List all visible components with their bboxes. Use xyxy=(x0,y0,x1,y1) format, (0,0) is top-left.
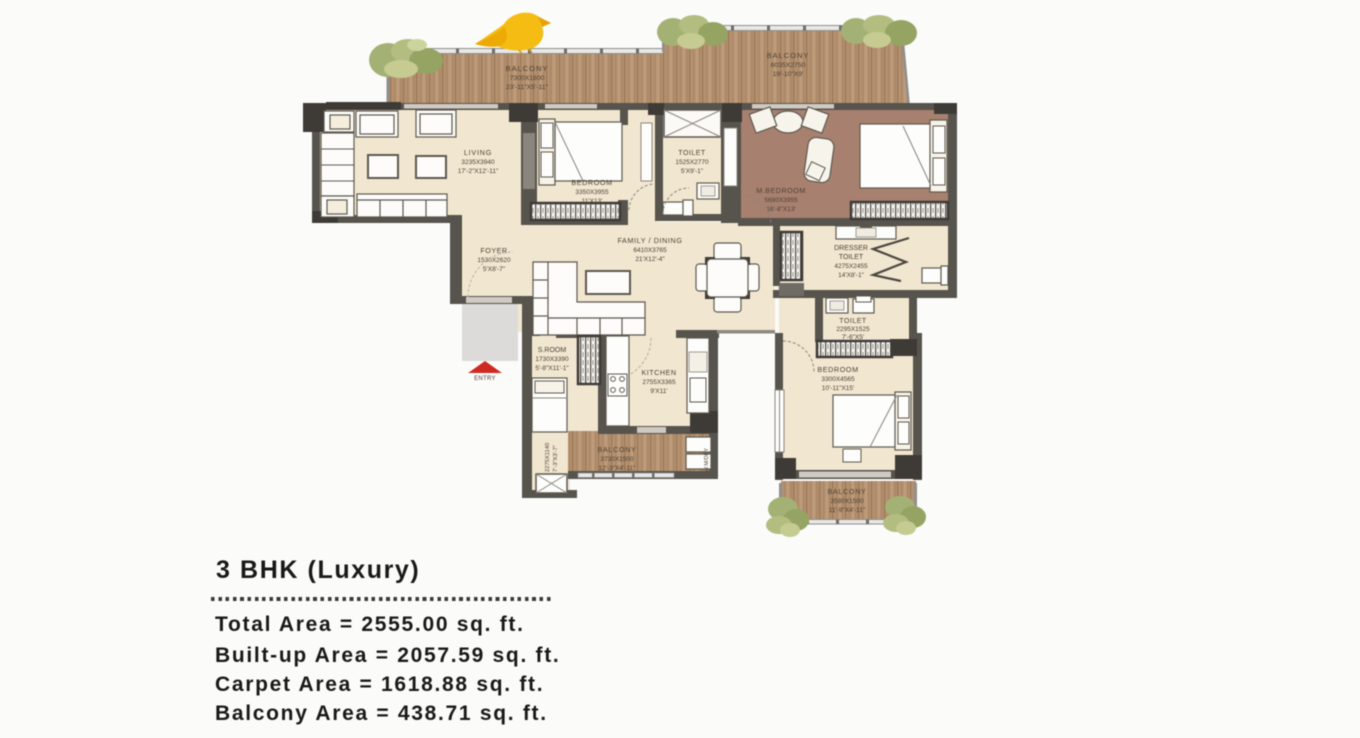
svg-text:BALCONY: BALCONY xyxy=(506,64,549,73)
svg-text:5'X9'-1": 5'X9'-1" xyxy=(681,168,704,175)
svg-text:3300X4565: 3300X4565 xyxy=(821,376,855,383)
svg-text:M.BEDROOM: M.BEDROOM xyxy=(756,186,806,195)
svg-text:21'X12'-4": 21'X12'-4" xyxy=(635,256,665,263)
svg-text:TOILET: TOILET xyxy=(678,150,706,157)
svg-text:FAMILY / DINING: FAMILY / DINING xyxy=(617,236,682,245)
svg-text:7300X1800: 7300X1800 xyxy=(510,75,545,82)
svg-text:DRESSER: DRESSER xyxy=(834,245,868,252)
svg-text:FOYER: FOYER xyxy=(480,246,507,255)
svg-text:10'-11"X15': 10'-11"X15' xyxy=(822,385,855,392)
svg-text:12'-3"X4'-11": 12'-3"X4'-11" xyxy=(599,465,637,472)
svg-text:11'X13': 11'X13' xyxy=(582,198,603,205)
svg-text:BEDROOM: BEDROOM xyxy=(817,365,858,374)
svg-text:3730X1500: 3730X1500 xyxy=(600,456,634,463)
svg-text:TOILET: TOILET xyxy=(839,254,864,261)
svg-text:BALCONY: BALCONY xyxy=(597,447,636,454)
svg-text:5680X3955: 5680X3955 xyxy=(764,197,798,204)
svg-text:9'X11': 9'X11' xyxy=(650,388,667,395)
svg-text:2755X3365: 2755X3365 xyxy=(642,379,676,386)
svg-text:7'-3"X3'-7": 7'-3"X3'-7" xyxy=(553,445,559,472)
svg-text:1530X2620: 1530X2620 xyxy=(477,257,511,264)
svg-text:23'-11"X5'-11": 23'-11"X5'-11" xyxy=(506,84,549,91)
svg-text:BALCONY: BALCONY xyxy=(767,51,810,60)
svg-text:1730X3390: 1730X3390 xyxy=(535,356,569,363)
svg-text:ENTRY: ENTRY xyxy=(474,376,496,382)
svg-text:14'X8'-1": 14'X8'-1" xyxy=(838,272,864,279)
svg-text:KITCHEN: KITCHEN xyxy=(641,368,676,377)
svg-text:4275X2455: 4275X2455 xyxy=(834,263,868,270)
svg-text:5'X8'-7": 5'X8'-7" xyxy=(483,266,506,273)
svg-text:TOILET: TOILET xyxy=(839,318,867,325)
svg-text:BEDROOM: BEDROOM xyxy=(571,178,612,187)
svg-text:3235X3940: 3235X3940 xyxy=(461,159,495,166)
svg-text:LIVING: LIVING xyxy=(464,148,492,157)
svg-text:6410X3765: 6410X3765 xyxy=(633,247,667,254)
svg-text:S.ROOM: S.ROOM xyxy=(538,347,567,354)
svg-text:BALCONY: BALCONY xyxy=(827,489,866,496)
svg-text:2275X1140: 2275X1140 xyxy=(545,443,551,472)
svg-text:19'-10"X9': 19'-10"X9' xyxy=(773,71,804,78)
svg-text:11'-9"X4'-11": 11'-9"X4'-11" xyxy=(829,507,866,514)
svg-text:1525X2770: 1525X2770 xyxy=(675,159,709,166)
svg-text:6035X2750: 6035X2750 xyxy=(771,62,806,69)
svg-text:17'-2"X12'-11": 17'-2"X12'-11" xyxy=(458,168,499,175)
svg-text:W.M/DRY: W.M/DRY xyxy=(704,448,710,472)
svg-text:16'-8"X13': 16'-8"X13' xyxy=(766,206,795,213)
svg-text:5'-8"X11'-1": 5'-8"X11'-1" xyxy=(535,365,569,372)
svg-text:3580X1500: 3580X1500 xyxy=(830,498,864,505)
svg-text:3350X3955: 3350X3955 xyxy=(575,189,609,196)
svg-text:2295X1525: 2295X1525 xyxy=(836,326,870,333)
